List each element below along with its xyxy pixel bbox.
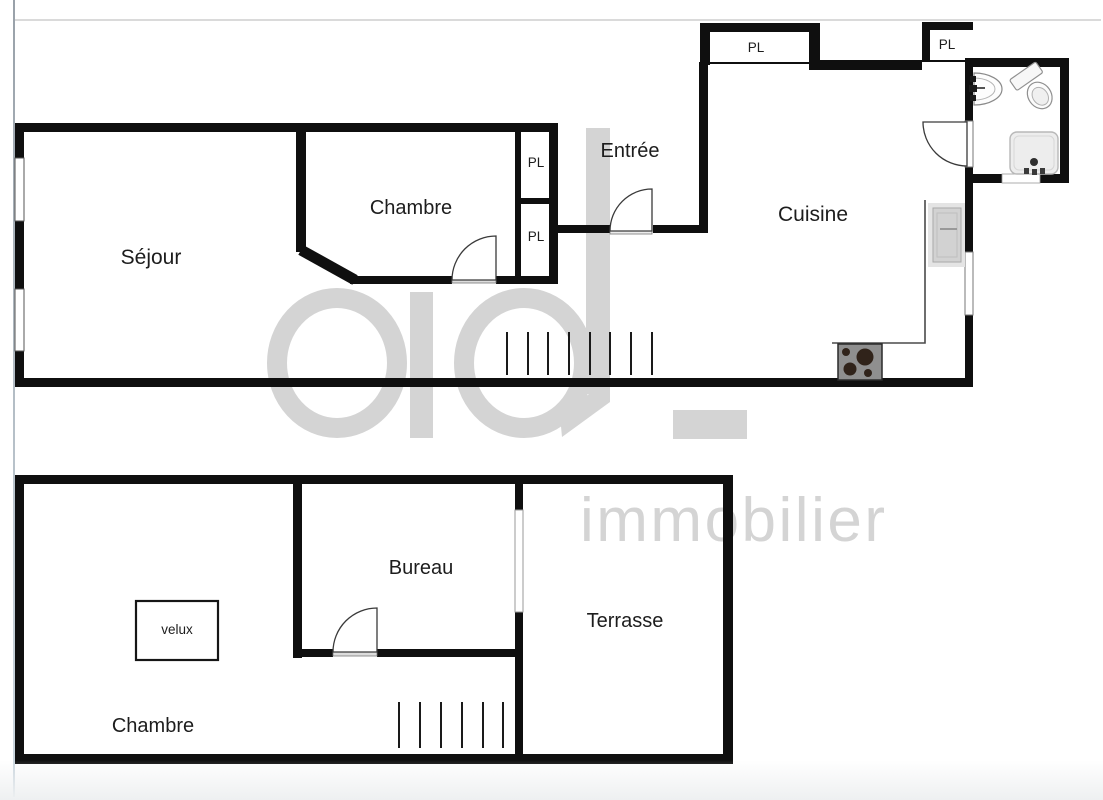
window-icon	[15, 158, 24, 221]
wall	[377, 649, 523, 657]
wall	[922, 22, 930, 62]
upper-floor: Séjour Chambre Entrée Cuisine PL PL PL P…	[15, 22, 1069, 387]
closet-label-pl-3: PL	[528, 155, 545, 170]
page-bottom-shade	[0, 760, 1103, 800]
wall-sejour-chambre	[296, 123, 306, 252]
room-label-bureau: Bureau	[389, 557, 454, 579]
kitchen-fixtures	[832, 200, 965, 380]
wall	[809, 23, 820, 65]
door-swing-icon-bathroom	[923, 122, 967, 166]
closet-label-pl-2: PL	[939, 37, 956, 52]
window-icon-kitchen	[965, 252, 973, 315]
window-icon	[15, 289, 24, 351]
wall-bathroom-right	[1060, 58, 1069, 183]
room-label-terrasse: Terrasse	[587, 610, 664, 632]
stove-icon	[838, 344, 882, 380]
wall-closet-divider	[515, 198, 558, 204]
door-swing-icon-chambre	[452, 236, 496, 280]
bathroom-fixtures	[969, 62, 1061, 175]
room-label-chambre-2: Chambre	[112, 715, 194, 737]
wall	[496, 276, 558, 284]
room-label-entree: Entrée	[601, 140, 660, 162]
upper-floor-labels: Séjour Chambre Entrée Cuisine PL PL PL P…	[121, 37, 956, 269]
floorplan-page: immobilier	[0, 0, 1103, 800]
closet-label-pl-4: PL	[528, 229, 545, 244]
floorplan-svg: immobilier	[0, 0, 1103, 800]
closet-front-line	[710, 62, 809, 64]
wall-bureau-left	[293, 475, 302, 658]
room-label-chambre: Chambre	[370, 197, 452, 219]
window-icon-terrasse	[515, 510, 523, 612]
upper-floor-walls	[15, 22, 1069, 387]
room-label-sejour: Séjour	[121, 246, 182, 269]
wall	[723, 475, 733, 764]
wall	[15, 475, 733, 484]
logo-letter-d-bowl	[464, 298, 584, 428]
shower-icon	[1010, 132, 1058, 175]
wall-entree-cuisine	[699, 62, 708, 233]
watermark-logo: immobilier	[277, 128, 887, 555]
wall	[350, 276, 452, 284]
window-icon-bathroom	[1002, 174, 1040, 183]
wall	[15, 123, 558, 132]
logo-letter-a-bowl	[277, 298, 397, 428]
room-label-cuisine: Cuisine	[778, 203, 848, 226]
wall-right	[965, 58, 973, 378]
door-swing-icon-entree	[610, 189, 652, 231]
door-swing-icon-bureau	[333, 608, 377, 652]
wall-bathroom-top	[965, 58, 1069, 67]
wall-diagonal	[301, 250, 355, 280]
fridge-icon	[928, 203, 965, 267]
wall-entree	[555, 225, 610, 233]
wall-cuisine-top	[809, 60, 922, 70]
lower-floor-doors	[333, 608, 377, 656]
wall	[15, 475, 24, 764]
wall	[15, 378, 973, 387]
toilet-icon	[1009, 62, 1060, 116]
wall	[700, 23, 710, 65]
closet-front-line	[930, 60, 965, 62]
sink-icon	[969, 73, 1002, 105]
watermark-brand-text: immobilier	[580, 486, 887, 555]
logo-underscore	[673, 410, 747, 439]
velux-label: velux	[161, 622, 193, 637]
closet-label-pl-1: PL	[748, 40, 765, 55]
wall-closet-top	[700, 23, 820, 32]
wall	[293, 649, 333, 657]
logo-letter-a-stem	[410, 292, 433, 438]
stairs-icon-lower	[399, 702, 503, 748]
